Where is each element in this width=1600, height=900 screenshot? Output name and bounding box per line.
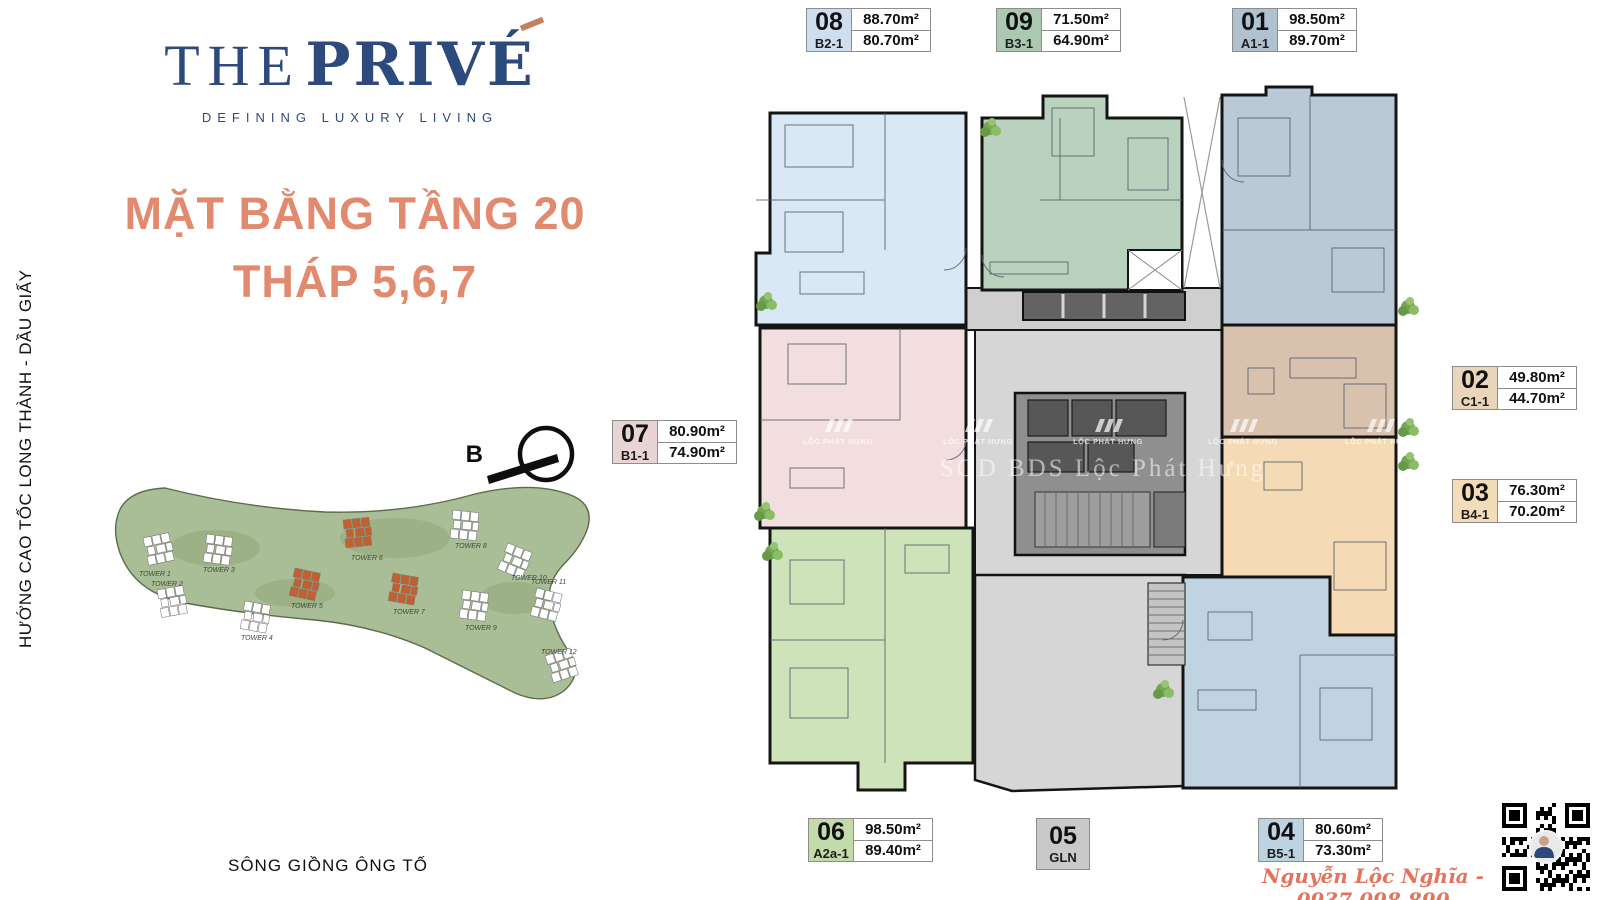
unit-07-code: B1-1 — [621, 448, 649, 463]
unit-09-area-gross: 71.50m² — [1041, 8, 1121, 31]
unit-07-floor-area — [760, 328, 966, 528]
unit-01-number: 01 — [1241, 9, 1269, 35]
unit-06-area-gross: 98.50m² — [853, 818, 933, 841]
title-line-1: MẶT BẰNG TẦNG 20 — [115, 180, 595, 248]
unit-09-number: 09 — [1005, 9, 1033, 35]
tower-3-label: TOWER 3 — [203, 567, 235, 574]
unit-07-area-gross: 80.90m² — [657, 420, 737, 443]
elevator-bank — [1023, 292, 1185, 320]
page-title: MẶT BẰNG TẦNG 20 THÁP 5,6,7 — [115, 180, 595, 315]
stairwell — [1148, 583, 1185, 665]
unit-03-area-net: 70.20m² — [1497, 501, 1577, 524]
tower-1-label: TOWER 1 — [139, 571, 171, 578]
unit-label-05: 05 GLN — [1036, 818, 1090, 870]
qr-code — [1498, 799, 1594, 895]
unit-label-01: 01 A1-1 98.50m² 89.70m² — [1232, 8, 1357, 52]
unit-04-number: 04 — [1267, 819, 1295, 845]
unit-07-area-net: 74.90m² — [657, 442, 737, 465]
brand-logo: THE PRIVÉ DEFINING LUXURY LIVING — [150, 30, 550, 125]
floor-plan: LỘC PHÁT HƯNG LỘC PHÁT HƯNG LỘC PHÁT HƯN… — [750, 85, 1430, 795]
planter-icon — [1398, 297, 1419, 316]
compass-north-label: B — [466, 441, 483, 468]
unit-06-number: 06 — [817, 819, 845, 845]
unit-05-badge: 05 GLN — [1036, 818, 1090, 870]
unit-05-code: GLN — [1049, 850, 1076, 865]
unit-03-area-gross: 76.30m² — [1497, 479, 1577, 502]
flyer-canvas: THE PRIVÉ DEFINING LUXURY LIVING MẶT BẰN… — [0, 0, 1600, 900]
agent-avatar — [1529, 830, 1563, 864]
watermark-center-text: SGD BDS Lộc Phát Hưng — [940, 455, 1267, 482]
unit-02-badge: 02 C1-1 — [1452, 366, 1498, 410]
unit-08-code: B2-1 — [815, 36, 843, 51]
unit-label-07: 07 B1-1 80.90m² 74.90m² — [612, 420, 737, 464]
unit-03-code: B4-1 — [1461, 507, 1489, 522]
unit-04-area-net: 73.30m² — [1303, 840, 1383, 863]
tower-12-label: TOWER 12 — [541, 649, 577, 656]
river-label: SÔNG GIỒNG ÔNG TỐ — [228, 856, 428, 876]
unit-05-number: 05 — [1049, 823, 1077, 849]
unit-01-floor-area — [1222, 87, 1396, 325]
tower-3-footprint — [203, 534, 234, 565]
tower-4-label: TOWER 4 — [241, 635, 273, 642]
logo-the: THE — [164, 33, 301, 98]
unit-06-code: A2a-1 — [813, 846, 848, 861]
unit-06-floor-area — [770, 528, 973, 790]
svg-text:LỘC PHÁT HƯNG: LỘC PHÁT HƯNG — [1345, 437, 1415, 446]
unit-04-code: B5-1 — [1267, 846, 1295, 861]
unit-02-number: 02 — [1461, 367, 1489, 393]
unit-label-03: 03 B4-1 76.30m² 70.20m² — [1452, 479, 1577, 523]
logo-e-accented: É — [487, 30, 536, 100]
svg-text:LỘC PHÁT HƯNG: LỘC PHÁT HƯNG — [803, 437, 873, 446]
unit-01-code: A1-1 — [1241, 36, 1269, 51]
unit-08-floor-area — [756, 113, 966, 325]
tower-2-label: TOWER 2 — [151, 581, 183, 588]
tower-8-label: TOWER 8 — [455, 543, 487, 550]
unit-08-area-net: 80.70m² — [851, 30, 931, 53]
unit-label-09: 09 B3-1 71.50m² 64.90m² — [996, 8, 1121, 52]
unit-03-number: 03 — [1461, 480, 1489, 506]
light-well-void — [1184, 97, 1220, 288]
qr-finder-icon — [1502, 803, 1527, 828]
tower-7-label: TOWER 7 — [393, 609, 426, 616]
unit-03-badge: 03 B4-1 — [1452, 479, 1498, 523]
unit-08-area-gross: 88.70m² — [851, 8, 931, 31]
tower-9-label: TOWER 9 — [465, 625, 497, 632]
unit-09-badge: 09 B3-1 — [996, 8, 1042, 52]
unit-02-code: C1-1 — [1461, 394, 1489, 409]
unit-09-code: B3-1 — [1005, 36, 1033, 51]
logo-tagline: DEFINING LUXURY LIVING — [150, 110, 550, 125]
logo-prive: PRIVÉ — [305, 30, 535, 100]
tower-6-footprint — [343, 517, 373, 548]
site-map: TOWER 1 TOWER 2 TOWER 3 TOWER 4 TOWER 5 … — [95, 418, 605, 718]
tower-11-label: TOWER 11 — [531, 579, 566, 586]
highway-label: HƯỚNG CAO TỐC LONG THÀNH - DẦU GIẤY — [16, 270, 36, 648]
unit-label-08: 08 B2-1 88.70m² 80.70m² — [806, 8, 931, 52]
ac-ledge — [1128, 250, 1182, 290]
unit-07-badge: 07 B1-1 — [612, 420, 658, 464]
unit-06-area-net: 89.40m² — [853, 840, 933, 863]
qr-finder-icon — [1502, 866, 1527, 891]
svg-text:LỘC PHÁT HƯNG: LỘC PHÁT HƯNG — [1073, 437, 1143, 446]
compass: B — [466, 428, 572, 484]
tower-4-footprint — [240, 601, 271, 633]
unit-04-area-gross: 80.60m² — [1303, 818, 1383, 841]
tower-8-footprint — [450, 510, 480, 541]
unit-08-number: 08 — [815, 9, 843, 35]
tower-9-footprint — [459, 590, 490, 621]
unit-09-area-net: 64.90m² — [1041, 30, 1121, 53]
planter-icon — [1398, 418, 1419, 437]
unit-01-area-net: 89.70m² — [1277, 30, 1357, 53]
unit-01-area-gross: 98.50m² — [1277, 8, 1357, 31]
qr-finder-icon — [1565, 803, 1590, 828]
svg-text:LỘC PHÁT HƯNG: LỘC PHÁT HƯNG — [1208, 437, 1278, 446]
unit-04-badge: 04 B5-1 — [1258, 818, 1304, 862]
unit-08-badge: 08 B2-1 — [806, 8, 852, 52]
title-line-2: THÁP 5,6,7 — [115, 248, 595, 316]
tower-6-label: TOWER 6 — [351, 555, 383, 562]
unit-label-06: 06 A2a-1 98.50m² 89.40m² — [808, 818, 933, 862]
unit-label-04: 04 B5-1 80.60m² 73.30m² — [1258, 818, 1383, 862]
unit-label-02: 02 C1-1 49.80m² 44.70m² — [1452, 366, 1577, 410]
planter-icon — [1398, 452, 1419, 471]
unit-06-badge: 06 A2a-1 — [808, 818, 854, 862]
unit-02-area-net: 44.70m² — [1497, 388, 1577, 411]
tower-5-label: TOWER 5 — [291, 603, 323, 610]
svg-text:LỘC PHÁT HƯNG: LỘC PHÁT HƯNG — [943, 437, 1013, 446]
agent-contact: Nguyễn Lộc Nghĩa - 0937.098.890 — [1238, 864, 1508, 900]
unit-01-badge: 01 A1-1 — [1232, 8, 1278, 52]
unit-07-number: 07 — [621, 421, 649, 447]
unit-02-area-gross: 49.80m² — [1497, 366, 1577, 389]
